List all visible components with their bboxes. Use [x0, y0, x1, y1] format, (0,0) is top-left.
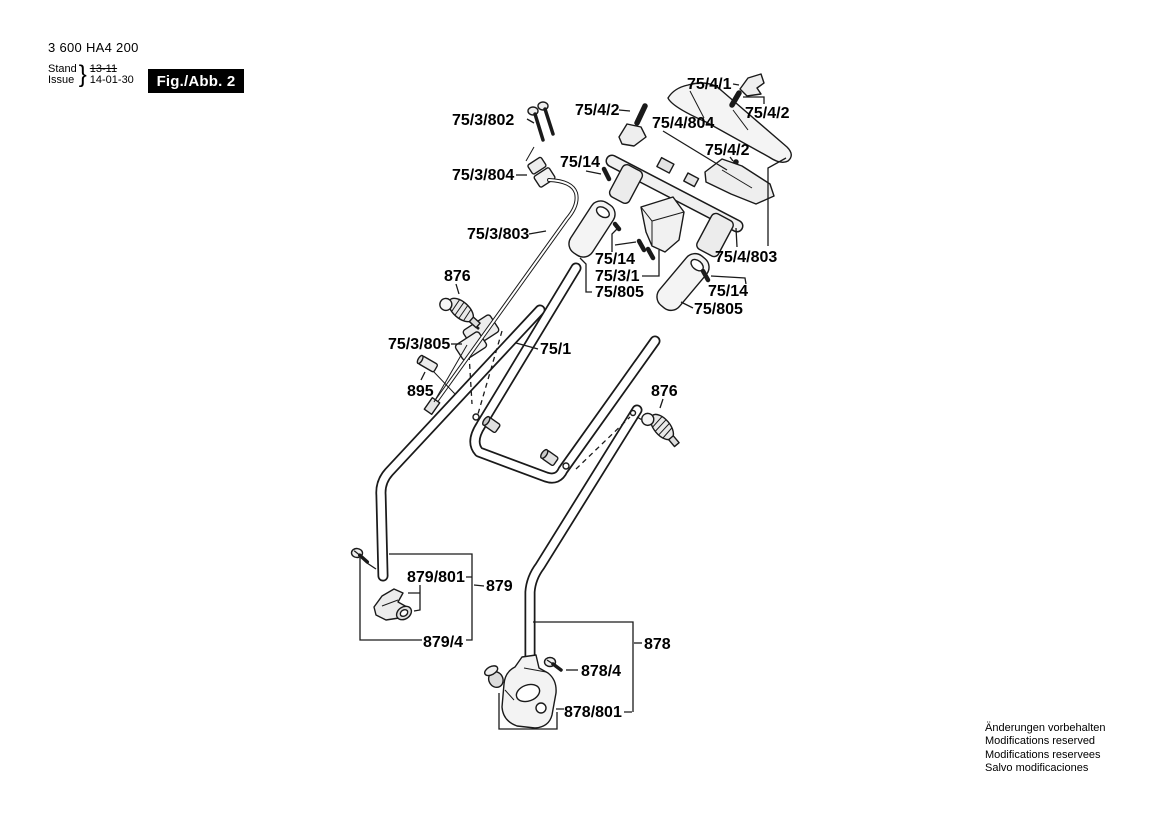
- switch-insert-75-3-1: [641, 197, 684, 252]
- bolt-hole: [563, 463, 569, 469]
- parts-diagram-page: 3 600 HA4 200 Stand Issue } 13-11 14-01-…: [0, 0, 1169, 826]
- part-label-75-4-1: 75/4/1: [687, 76, 732, 93]
- part-label-75-3-804: 75/3/804: [452, 167, 514, 184]
- part-label-75-4-803: 75/4/803: [715, 249, 777, 266]
- pin-75-4-2: [637, 106, 645, 123]
- part-label-878-801: 878/801: [564, 704, 622, 721]
- wing-knob-right: [639, 406, 683, 453]
- latch-879-801: [374, 589, 414, 623]
- pin-75-14: [604, 169, 609, 179]
- part-label-75-3-1: 75/3/1: [595, 268, 640, 285]
- part-label-895: 895: [407, 383, 434, 400]
- trigger-75-4-804: [705, 159, 774, 204]
- part-label-75-805-a: 75/805: [595, 284, 644, 301]
- wing-knob-left: [437, 290, 483, 334]
- part-label-879: 879: [486, 578, 513, 595]
- pin-75-4-2: [732, 93, 739, 105]
- pin-75-14: [639, 241, 644, 250]
- part-label-75-14-b: 75/14: [595, 251, 635, 268]
- cable-clip: [526, 156, 555, 188]
- modifications-notice: Änderungen vorbehaltenModifications rese…: [985, 722, 1105, 776]
- exploded-parts-drawing: 75/3/80275/4/275/4/175/4/275/4/80475/4/2…: [0, 0, 1169, 826]
- part-label-75-14-a: 75/14: [560, 154, 600, 171]
- part-label-879-4: 879/4: [423, 634, 463, 651]
- wheel-housing-878-801: [483, 655, 556, 728]
- bolt-hole: [473, 414, 479, 420]
- part-label-878-4: 878/4: [581, 663, 621, 680]
- part-label-75-4-2-b: 75/4/2: [745, 105, 790, 122]
- part-label-876-a: 876: [444, 268, 471, 285]
- part-label-75-1: 75/1: [540, 341, 571, 358]
- notice-line: Salvo modificaciones: [985, 762, 1105, 775]
- cable-end-pin: [416, 355, 438, 373]
- pin-75-14: [648, 249, 653, 258]
- part-label-75-3-805: 75/3/805: [388, 336, 450, 353]
- switch-lever-75-4-1: [740, 74, 764, 96]
- part-label-75-4-2-a: 75/4/2: [575, 102, 620, 119]
- screw-878-4: [545, 658, 562, 671]
- part-label-75-14-c: 75/14: [708, 283, 748, 300]
- part-label-75-4-2-c: 75/4/2: [705, 142, 750, 159]
- carriage-bolt: [539, 448, 558, 466]
- part-label-876-b: 876: [651, 383, 678, 400]
- cable-assembly: [416, 102, 576, 414]
- notice-line: Modifications reserved: [985, 735, 1105, 748]
- part-label-75-805-b: 75/805: [694, 301, 743, 318]
- pivot-piece: [619, 124, 646, 146]
- part-label-879-801: 879/801: [407, 569, 465, 586]
- notice-line: Modifications reservees: [985, 749, 1105, 762]
- part-label-75-3-803: 75/3/803: [467, 226, 529, 243]
- part-label-75-4-804: 75/4/804: [652, 115, 714, 132]
- notice-line: Änderungen vorbehalten: [985, 722, 1105, 735]
- grommet: [483, 664, 506, 690]
- part-label-878: 878: [644, 636, 671, 653]
- part-label-75-3-802: 75/3/802: [452, 112, 514, 129]
